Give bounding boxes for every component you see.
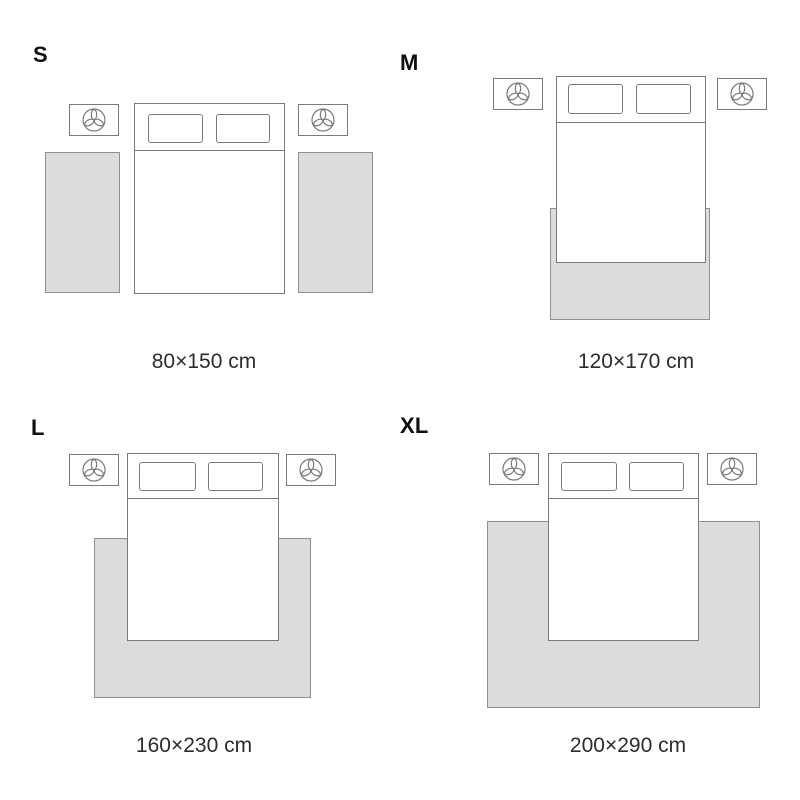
nightstand-left: [69, 454, 119, 486]
plant-top-view-icon: [494, 79, 542, 109]
nightstand-left: [493, 78, 543, 110]
bed: [127, 453, 279, 641]
rug-runner-left: [45, 152, 120, 293]
size-caption-s: 80×150 cm: [94, 351, 314, 372]
plant-top-view-icon: [718, 79, 766, 109]
nightstand-right: [707, 453, 757, 485]
bed-headboard: [128, 454, 278, 499]
pillow-left: [148, 114, 203, 143]
plant-top-view-icon: [287, 455, 335, 485]
plant-top-view-icon: [70, 105, 118, 135]
bed: [548, 453, 699, 641]
bed: [134, 103, 285, 294]
bed-headboard: [557, 77, 705, 123]
nightstand-right: [717, 78, 767, 110]
nightstand-left: [489, 453, 539, 485]
size-caption-m: 120×170 cm: [526, 351, 746, 372]
pillow-right: [636, 84, 691, 114]
pillow-right: [629, 462, 684, 491]
size-label-s: S: [33, 44, 48, 66]
size-label-l: L: [31, 417, 45, 439]
size-label-m: M: [400, 52, 419, 74]
pillow-left: [561, 462, 617, 491]
pillow-right: [216, 114, 270, 143]
size-caption-xl: 200×290 cm: [518, 735, 738, 756]
plant-top-view-icon: [70, 455, 118, 485]
nightstand-right: [298, 104, 348, 136]
size-caption-l: 160×230 cm: [84, 735, 304, 756]
pillow-right: [208, 462, 263, 491]
size-panel-xl: XL: [400, 400, 800, 800]
plant-top-view-icon: [299, 105, 347, 135]
nightstand-left: [69, 104, 119, 136]
bed-headboard: [135, 104, 284, 151]
nightstand-right: [286, 454, 336, 486]
plant-top-view-icon: [708, 454, 756, 484]
rug-runner-right: [298, 152, 373, 293]
pillow-left: [568, 84, 623, 114]
bed: [556, 76, 706, 263]
plant-top-view-icon: [490, 454, 538, 484]
size-panel-l: L: [0, 400, 400, 800]
size-label-xl: XL: [400, 415, 429, 437]
size-panel-m: M: [400, 0, 800, 400]
rug-size-guide: S: [0, 0, 800, 800]
bed-headboard: [549, 454, 698, 499]
pillow-left: [139, 462, 196, 491]
size-panel-s: S: [0, 0, 400, 400]
